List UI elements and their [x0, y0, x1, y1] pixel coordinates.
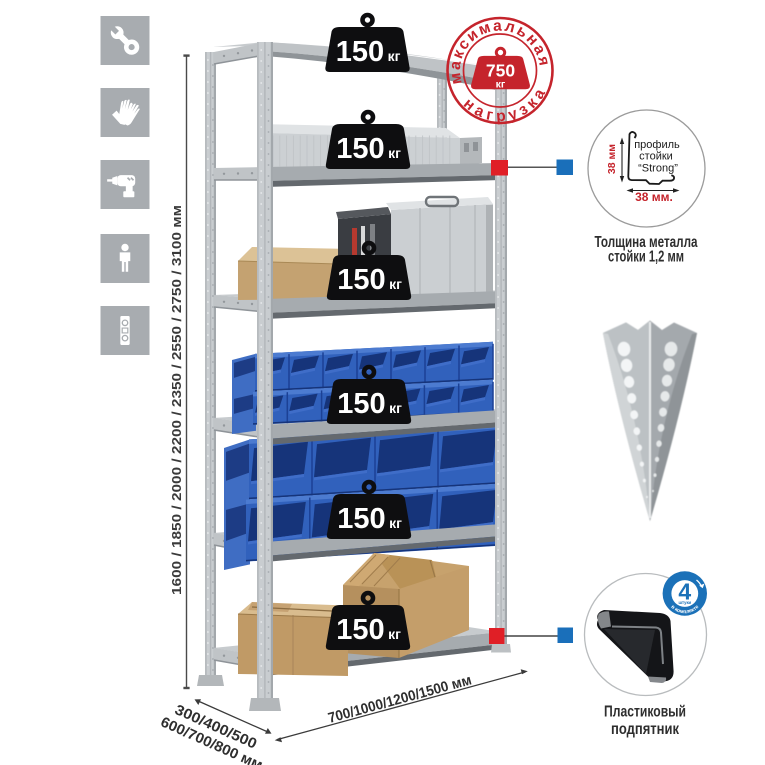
- svg-text:38 мм: 38 мм: [606, 144, 618, 174]
- svg-text:кг: кг: [389, 400, 402, 416]
- svg-text:150: 150: [337, 503, 385, 535]
- svg-text:кг: кг: [388, 48, 401, 64]
- svg-text:1600 / 1850 / 2000 / 2200 / 23: 1600 / 1850 / 2000 / 2200 / 2350 / 2550 …: [169, 205, 184, 595]
- svg-text:150: 150: [337, 264, 385, 296]
- svg-text:150: 150: [336, 133, 384, 165]
- svg-text:кг: кг: [388, 626, 401, 642]
- svg-text:150: 150: [337, 388, 385, 420]
- svg-text:750: 750: [486, 61, 515, 81]
- svg-text:штуки: штуки: [678, 600, 691, 605]
- svg-text:профиль: профиль: [634, 139, 680, 151]
- svg-text:подпятник: подпятник: [611, 721, 680, 738]
- svg-text:кг: кг: [389, 515, 402, 531]
- svg-text:кг: кг: [389, 276, 402, 292]
- svg-text:стойки 1,2 мм: стойки 1,2 мм: [608, 249, 684, 266]
- svg-text:кг: кг: [496, 79, 506, 91]
- svg-text:150: 150: [336, 36, 384, 68]
- svg-text:Пластиковый: Пластиковый: [604, 704, 686, 721]
- svg-text:150: 150: [336, 614, 384, 646]
- svg-text:38 мм.: 38 мм.: [635, 190, 673, 204]
- svg-text:“Strong”: “Strong”: [638, 163, 678, 175]
- svg-text:кг: кг: [388, 145, 401, 161]
- svg-text:стойки: стойки: [639, 151, 673, 163]
